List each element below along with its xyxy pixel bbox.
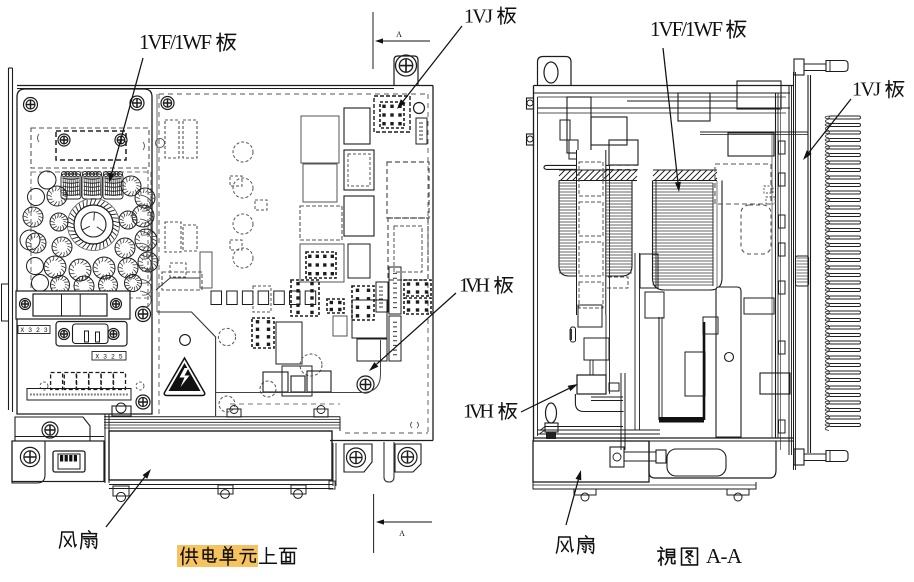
svg-text:1VH: 1VH [463, 401, 494, 423]
svg-text:A: A [396, 30, 402, 39]
svg-text:1VF/1WF: 1VF/1WF [650, 17, 723, 41]
svg-text:1VJ: 1VJ [852, 79, 881, 101]
svg-text:X 3 2 3: X 3 2 3 [20, 327, 47, 334]
svg-text:1VF/1WF: 1VF/1WF [139, 30, 212, 54]
svg-text:X 3 2 5: X 3 2 5 [95, 354, 122, 361]
svg-text:A: A [399, 529, 405, 538]
svg-text:1VJ: 1VJ [464, 6, 493, 28]
svg-text:A-A: A-A [706, 544, 743, 568]
svg-text:1VH: 1VH [459, 275, 490, 297]
